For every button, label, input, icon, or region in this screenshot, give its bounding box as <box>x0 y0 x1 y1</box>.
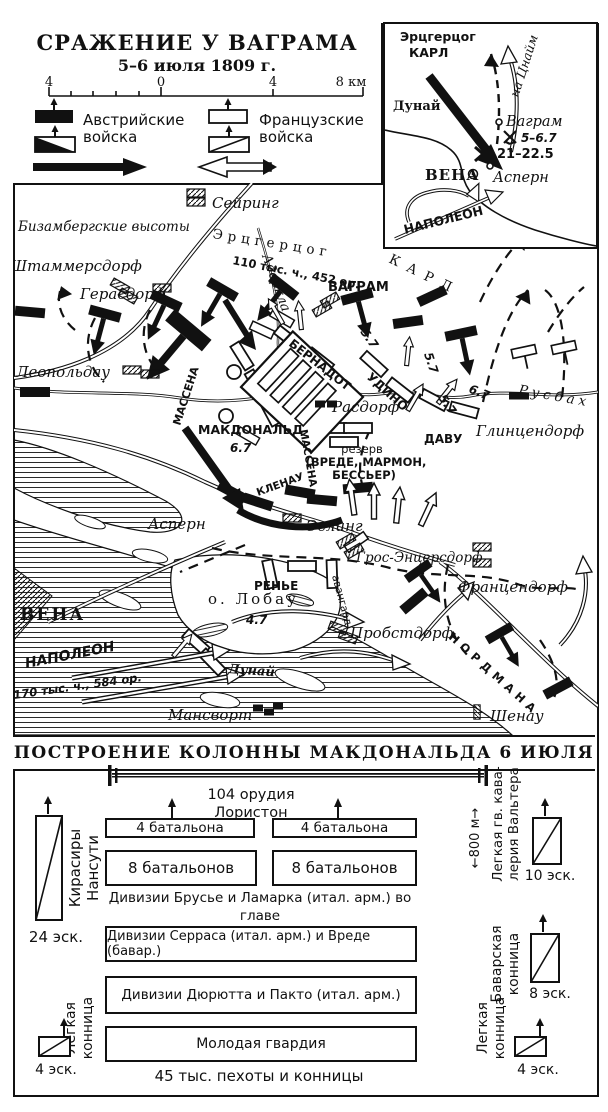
formation-header-text: ПОСТРОЕНИЕ КОЛОННЫ МАКДОНАЛЬДА 6 ИЮЛЯ <box>14 743 594 763</box>
inset-map: Эрцгерцог КАРЛ на Цнайм Дунай Ваграм 5–6… <box>383 22 598 249</box>
label-vena: ВЕНА <box>20 605 85 625</box>
light-cavalry-right-label: Легкаяконница <box>475 997 509 1060</box>
label-aderklaa-river: Адеркла <box>258 251 294 314</box>
scale-tick-label: 8 км <box>336 75 367 90</box>
inset-label-battle1: 5–6.7 <box>521 131 557 145</box>
inset-pursuit-arrowhead <box>501 46 517 64</box>
label-rasdorf: Расдорф <box>331 398 400 416</box>
label-franzensdorf: Францендорф <box>458 578 568 596</box>
austrian-infantry-symbol <box>35 98 73 123</box>
bavarian-cavalry-symbol <box>528 912 562 984</box>
inset-label-wagram: Ваграм <box>505 114 563 130</box>
scale-tick-label: 4 <box>269 75 277 90</box>
young-guard-box: Молодая гвардия <box>105 1026 417 1062</box>
map-subtitle: 5–6 июля 1809 г. <box>13 56 381 75</box>
inset-napoleon-head2 <box>485 190 503 204</box>
inset-label-battle2: 21–22.5 <box>497 147 554 162</box>
esk10-label: 10 эск. <box>522 868 578 884</box>
label-date-57b: 5.7 <box>421 351 441 376</box>
svg-text:(ВРЕДЕ, МАРМОН,: (ВРЕДЕ, МАРМОН, <box>306 455 427 469</box>
french-infantry-symbol <box>209 98 247 123</box>
legend-austrian-label: Австрийскиевойска <box>83 112 184 147</box>
label-glinzendorf: Глинцендорф <box>475 422 584 440</box>
label-date-67b: 6.7 <box>230 441 252 455</box>
label-macdonald: МАКДОНАЛЬД <box>198 422 303 437</box>
svg-text:БЕССЬЕР): БЕССЬЕР) <box>332 468 396 482</box>
label-stammersdorf: Штаммерсдорф <box>14 257 142 275</box>
inset-label-napoleon: НАПОЛЕОН <box>402 203 484 237</box>
label-probstdorf: Пробстдорф <box>349 624 454 642</box>
svg-text:резерв: резерв <box>341 442 383 456</box>
label-date-67a: 6.7 <box>467 382 493 403</box>
label-wagram: ВАГРАМ <box>328 280 389 295</box>
walther-cavalry-symbol <box>530 798 564 868</box>
inset-label-dunay: Дунай <box>393 99 441 114</box>
legend-box: Австрийскиевойска Французскиевойска <box>13 97 383 185</box>
inset-karl-arrow <box>429 76 491 156</box>
battalion-box-8b: 8 батальонов <box>272 850 417 886</box>
title-box: СРАЖЕНИЕ У ВАГРАМА 5–6 июля 1809 г. 4 0 … <box>13 23 383 99</box>
french-arrow-symbol <box>199 157 277 177</box>
scale-tick-label: 0 <box>157 75 165 90</box>
nansouty-cavalry-symbol <box>33 796 67 926</box>
inset-aspern-dot <box>487 163 493 169</box>
label-reserve: резерв (ВРЕДЕ, МАРМОН, БЕССЬЕР) <box>306 442 427 482</box>
inset-dashed-arrowhead <box>484 54 499 67</box>
label-gross-enzersdorf: Грос-Энцерсдорф <box>355 550 483 566</box>
inset-dashed-retreat <box>491 54 499 144</box>
label-massena-1: МАССЕНА <box>170 365 201 427</box>
label-aspern: Асперн <box>147 515 206 533</box>
battalion-box-4b: 4 батальона <box>272 818 417 838</box>
inset-wagram-dot <box>496 119 502 125</box>
battalion-box-4a: 4 батальона <box>105 818 255 838</box>
label-lobau: о. Лобау <box>208 590 299 608</box>
inset-label-aspern: Асперн <box>492 170 549 186</box>
label-essling: Эслинг <box>306 517 363 535</box>
scale-tick-label: 4 <box>45 75 53 90</box>
m800-label: ←800 м→ <box>468 808 484 869</box>
inset-label-karl: КАРЛ <box>409 45 448 60</box>
nansouty-label: КирасирыНансути <box>66 829 102 907</box>
label-seyring: Сейринг <box>212 194 279 212</box>
esk4-right-label: 4 эск. <box>510 1062 566 1078</box>
unit-arrow-icon <box>164 798 180 818</box>
battalion-box-8a: 8 батальонов <box>105 850 257 886</box>
label-bisamberg: Бизамбергские высоты <box>17 219 190 235</box>
inset-label-vena: ВЕНА <box>425 166 480 184</box>
label-russbach: Русбах <box>516 382 591 411</box>
austrian-arrow-symbol <box>33 158 147 176</box>
esk24-label: 24 эск. <box>24 928 88 946</box>
light-cavalry-left-symbol <box>36 1018 74 1060</box>
durutte-box: Дивизии Дюрютта и Пакто (итал. арм.) <box>105 976 417 1014</box>
serras-box: Дивизии Серраса (итал. арм.) и Вреде (ба… <box>105 926 417 962</box>
label-karl: КАРЛ <box>386 251 462 299</box>
esk8-label: 8 эск. <box>522 986 578 1002</box>
label-gerasdorf: Герасдорф <box>79 285 166 303</box>
unit-arrow-icon <box>330 798 346 818</box>
french-cavalry-symbol <box>209 125 249 152</box>
label-davout: ДАВУ <box>424 432 462 446</box>
austrian-cavalry-symbol <box>35 125 75 152</box>
esk4-left-label: 4 эск. <box>28 1062 84 1078</box>
total-caption: 45 тыс. пехоты и конницы <box>105 1066 413 1086</box>
main-map: Сейринг Бизамбергские высоты Эрцгерцог К… <box>14 183 598 735</box>
bavarian-label: Баварскаяконница <box>489 925 523 1002</box>
label-mansvort: Мансворт <box>167 706 252 724</box>
label-date-47: 4.7 <box>245 613 268 627</box>
walther-label: Легкая гв. кава-лерия Вальтера <box>490 766 522 882</box>
inset-label-erzherzog: Эрцгерцог <box>400 29 476 44</box>
label-schoenau: Шенау <box>489 707 544 725</box>
map-title: СРАЖЕНИЕ У ВАГРАМА <box>13 30 381 55</box>
dashed-arrowhead <box>53 284 72 300</box>
label-leopoldau: Леопольдау <box>15 363 110 381</box>
light-cavalry-right-symbol <box>512 1018 550 1060</box>
battle-map-page: СРАЖЕНИЕ У ВАГРАМА 5–6 июля 1809 г. 4 0 … <box>0 0 608 1112</box>
legend-french-label: Французскиевойска <box>259 112 364 147</box>
